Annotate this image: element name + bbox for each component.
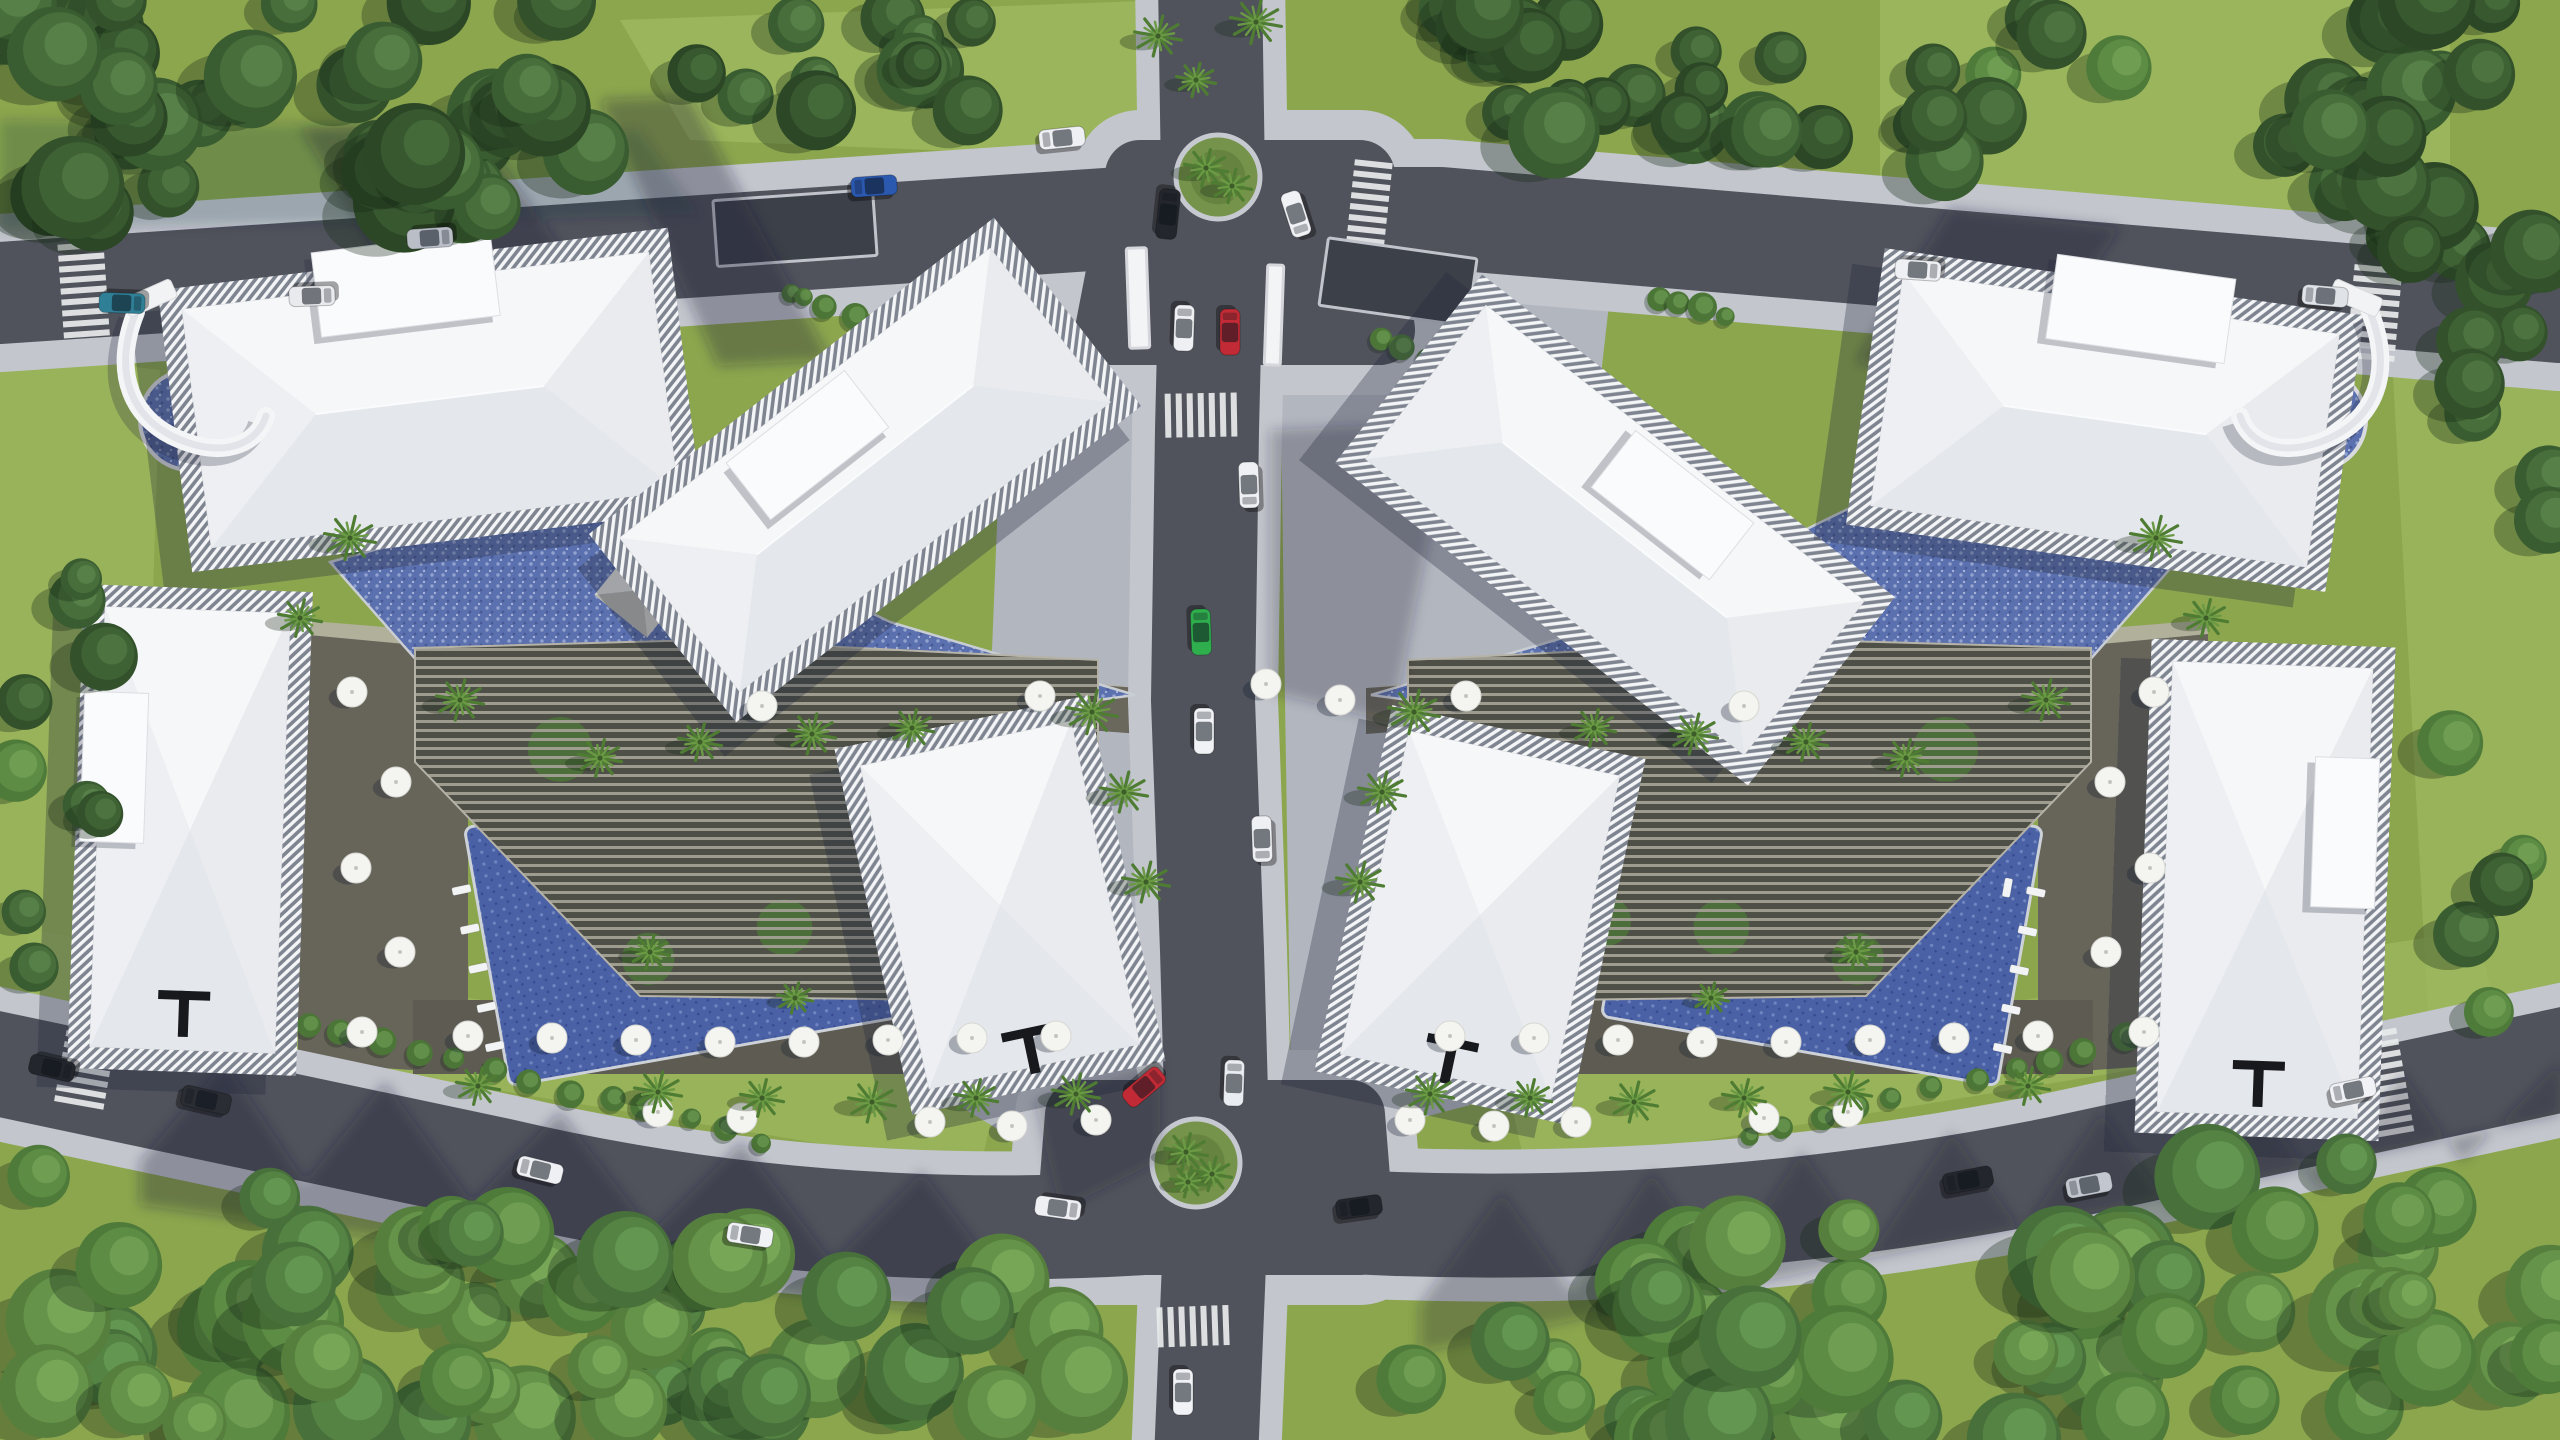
car — [1190, 704, 1214, 754]
crosswalk — [57, 242, 109, 339]
car — [406, 222, 458, 249]
car — [1219, 1056, 1245, 1107]
car — [1894, 254, 1946, 281]
car — [1169, 1365, 1193, 1415]
car — [2297, 284, 2349, 312]
car — [99, 288, 150, 314]
render-layers — [0, 0, 2560, 1440]
car — [1186, 605, 1212, 656]
aerial-site-plan-render — [0, 0, 2560, 1440]
car — [846, 174, 898, 201]
car — [1216, 305, 1240, 355]
car — [1169, 301, 1195, 352]
site-plan-svg — [0, 0, 2560, 1440]
car — [1238, 462, 1264, 513]
car — [289, 281, 340, 307]
car — [1251, 816, 1277, 867]
